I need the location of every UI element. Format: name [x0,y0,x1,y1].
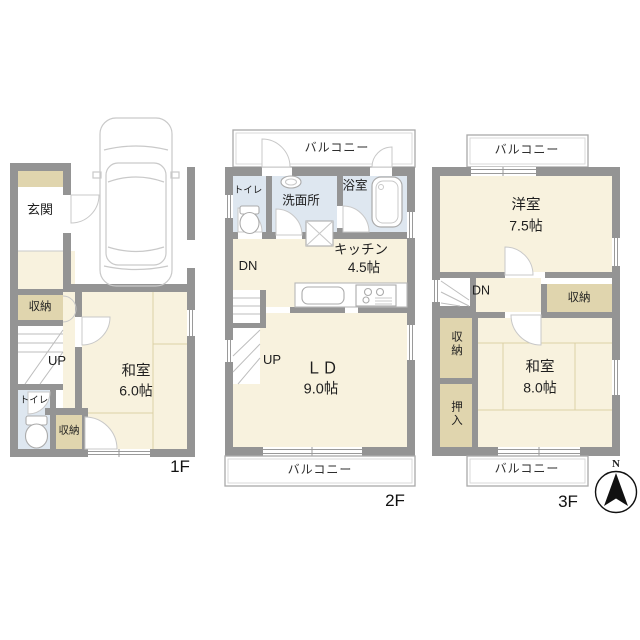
kitchen-label-2f: キッチン [334,243,388,257]
stairs-up-label-1f: UP [48,354,66,368]
storage-hall-label-3f: 収納 [568,292,591,304]
toilet-label-2f: トイレ [234,186,263,196]
japanese-room-label-1f: 和室 [122,364,151,379]
stairs-3f [440,278,470,306]
entrance-cabinet [18,171,63,187]
japanese-room-size-1f: 6.0帖 [119,384,152,399]
western-room-label-3f: 洋室 [512,198,541,213]
balcony-top-label-3f: バルコニー [495,144,560,157]
stairs-down-label-3f: DN [472,284,490,297]
storage-upper-label-1f: 収納 [29,301,52,313]
living-dining-label-2f: ＬＤ [306,362,338,379]
living-dining-size-2f: 9.0帖 [304,382,339,397]
balcony-bottom-label-3f: バルコニー [495,463,560,476]
bathtub-icon [372,177,402,227]
toilet-label-1f: トイレ [20,396,49,406]
balcony-top-label-2f: バルコニー [305,142,370,155]
kitchen-size-2f: 4.5帖 [348,261,380,275]
sink-icon-2f [281,176,301,188]
bathroom-label-2f: 浴室 [342,179,367,192]
floor-plan-canvas: 玄関 収納 UP トイレ 収納 和室 6.0帖 1F バルコニー トイレ 洗面所… [0,0,640,640]
kitchen-counter-icon [295,283,407,307]
toilet-icon-2f [240,206,259,234]
floor3-label: 3F [558,493,578,511]
stairs-2f [233,290,260,384]
kitchen-sink-icon [302,287,344,304]
stairs-up-label-2f: UP [263,353,281,367]
western-room-size-3f: 7.5帖 [509,219,542,234]
japanese-room-label-3f: 和室 [526,360,555,375]
stove-icon [356,285,396,306]
floor2-label: 2F [385,492,405,510]
storage-lower-label-1f: 収納 [59,425,80,436]
entrance-door-arc [71,195,99,223]
japanese-room-size-3f: 8.0帖 [523,381,556,396]
stairs-down-label-2f: DN [239,259,258,273]
car-icon [93,118,179,286]
entrance-room [18,187,63,251]
compass-icon [596,472,637,513]
balcony-bottom-label-2f: バルコニー [288,464,353,477]
washing-machine-icon [306,221,333,246]
compass-north-label: N [612,459,620,471]
storage-side-label-3f: 収納 [450,331,462,358]
floor1-label: 1F [170,458,190,476]
washroom-label-2f: 洗面所 [282,194,320,207]
closet-label-3f: 押入 [450,401,462,428]
toilet-icon-1f [26,416,48,448]
floor-plan-drawing [0,0,640,640]
entrance-label: 玄関 [27,203,53,217]
